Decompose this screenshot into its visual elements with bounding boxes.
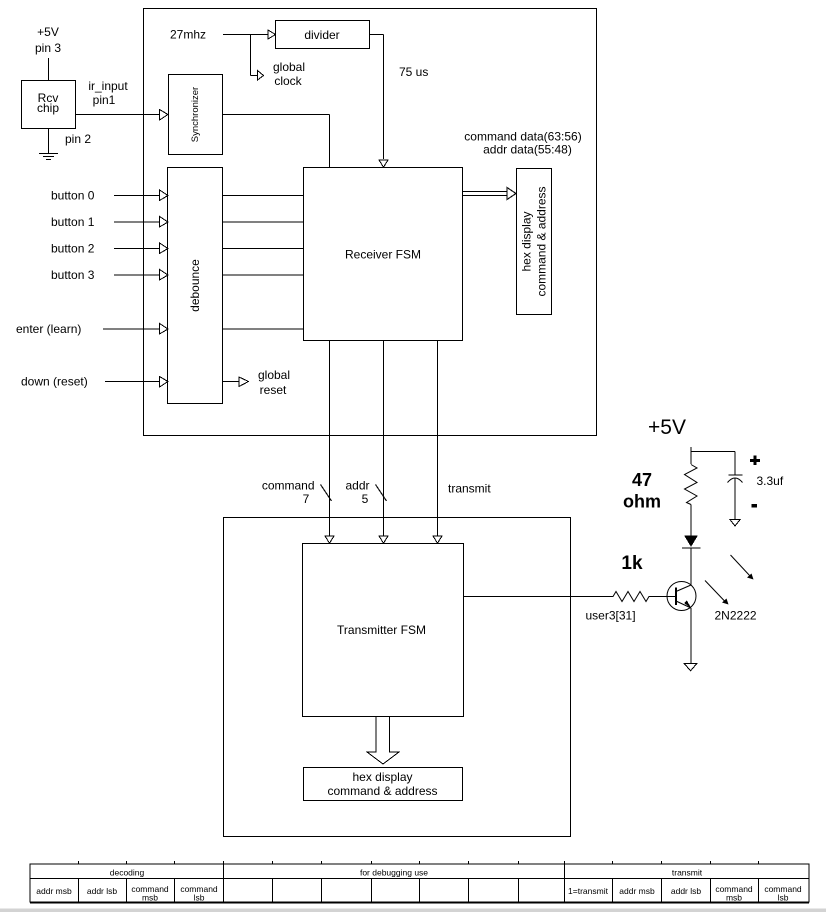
- svg-text:lsb: lsb: [778, 893, 789, 903]
- svg-text:msb: msb: [142, 893, 158, 903]
- svg-text:debounce: debounce: [188, 259, 202, 312]
- svg-text:button 1: button 1: [51, 215, 95, 229]
- svg-text:addr: addr: [345, 479, 369, 493]
- svg-text:divider: divider: [304, 28, 339, 42]
- svg-text:command data(63:56): command data(63:56): [464, 130, 581, 144]
- svg-text:clock: clock: [274, 74, 302, 88]
- svg-text:Synchronizer: Synchronizer: [190, 87, 201, 142]
- svg-text:addr data(55:48): addr data(55:48): [483, 143, 572, 157]
- svg-text:ohm: ohm: [623, 492, 661, 512]
- svg-text:transmit: transmit: [672, 868, 703, 878]
- svg-text:7: 7: [303, 492, 310, 506]
- svg-text:for debugging use: for debugging use: [360, 868, 428, 878]
- svg-text:pin 2: pin 2: [65, 132, 91, 146]
- svg-text:27mhz: 27mhz: [170, 28, 206, 42]
- svg-text:addr msb: addr msb: [36, 886, 72, 896]
- svg-text:hex display: hex display: [520, 211, 534, 271]
- svg-text:1=transmit: 1=transmit: [568, 886, 609, 896]
- svg-text:1k: 1k: [621, 553, 643, 574]
- svg-text:button 3: button 3: [51, 268, 95, 282]
- svg-text:button 2: button 2: [51, 242, 95, 256]
- svg-text:hex display: hex display: [352, 770, 412, 784]
- svg-text:75 us: 75 us: [399, 65, 428, 79]
- svg-text:Receiver FSM: Receiver FSM: [345, 248, 421, 262]
- svg-text:addr lsb: addr lsb: [671, 886, 702, 896]
- svg-text:+5V: +5V: [648, 416, 686, 439]
- svg-text:pin1: pin1: [93, 93, 116, 107]
- svg-text:msb: msb: [726, 893, 742, 903]
- svg-text:5: 5: [362, 492, 369, 506]
- svg-text:+5V: +5V: [37, 25, 59, 39]
- svg-text:pin 3: pin 3: [35, 41, 61, 55]
- svg-text:lsb: lsb: [194, 893, 205, 903]
- svg-text:47: 47: [632, 470, 652, 490]
- svg-text:enter (learn): enter (learn): [16, 322, 81, 336]
- svg-text:down (reset): down (reset): [21, 375, 88, 389]
- svg-text:command & address: command & address: [327, 784, 437, 798]
- svg-text:Transmitter FSM: Transmitter FSM: [337, 623, 426, 637]
- svg-text:button 0: button 0: [51, 189, 95, 203]
- svg-text:addr msb: addr msb: [619, 886, 655, 896]
- svg-text:ir_input: ir_input: [88, 79, 128, 93]
- svg-text:reset: reset: [260, 383, 287, 397]
- svg-text:global: global: [273, 60, 305, 74]
- svg-text:global: global: [258, 368, 290, 382]
- svg-text:chip: chip: [37, 101, 59, 115]
- svg-text:command & address: command & address: [535, 186, 549, 296]
- svg-text:user3[31]: user3[31]: [586, 609, 636, 623]
- svg-text:2N2222: 2N2222: [715, 609, 757, 623]
- svg-text:command: command: [262, 479, 315, 493]
- svg-text:decoding: decoding: [110, 868, 145, 878]
- svg-text:addr lsb: addr lsb: [87, 886, 118, 896]
- svg-text:transmit: transmit: [448, 482, 491, 496]
- svg-text:3.3uf: 3.3uf: [757, 474, 784, 488]
